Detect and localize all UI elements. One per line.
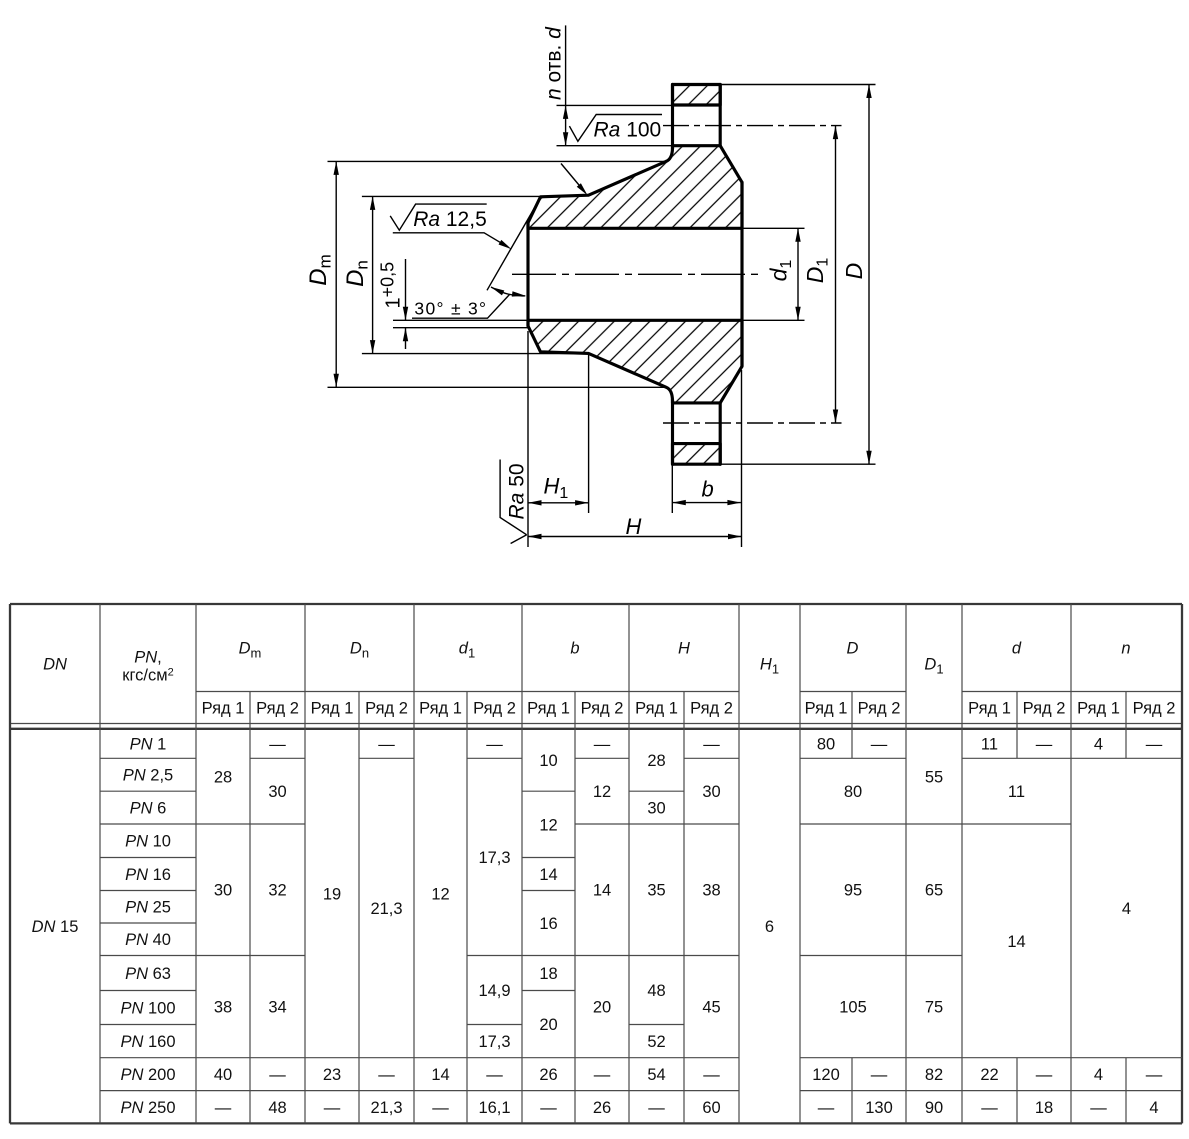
svg-text:130: 130 xyxy=(865,1099,893,1117)
svg-text:кгс/см2: кгс/см2 xyxy=(122,666,173,684)
svg-text:—: — xyxy=(594,736,611,754)
svg-text:D: D xyxy=(841,263,867,280)
svg-text:PN 6: PN 6 xyxy=(130,800,167,818)
svg-text:—: — xyxy=(703,736,720,754)
svg-text:Ряд 2: Ряд 2 xyxy=(1133,699,1176,717)
svg-text:Ряд 1: Ряд 1 xyxy=(311,699,354,717)
svg-text:Dm: Dm xyxy=(239,640,262,661)
svg-text:Ra 50: Ra 50 xyxy=(506,463,529,519)
svg-text:—: — xyxy=(1146,1066,1163,1084)
svg-text:Ряд 1: Ряд 1 xyxy=(527,699,570,717)
svg-text:35: 35 xyxy=(647,882,665,900)
svg-text:120: 120 xyxy=(812,1066,840,1084)
svg-text:12: 12 xyxy=(431,885,449,903)
svg-text:PN 200: PN 200 xyxy=(120,1066,175,1084)
svg-text:16: 16 xyxy=(539,915,557,933)
svg-text:54: 54 xyxy=(647,1066,665,1084)
svg-text:32: 32 xyxy=(268,882,286,900)
svg-text:48: 48 xyxy=(647,982,665,1000)
svg-text:14: 14 xyxy=(431,1066,449,1084)
svg-text:14: 14 xyxy=(539,866,557,884)
svg-text:16,1: 16,1 xyxy=(478,1099,510,1117)
svg-text:28: 28 xyxy=(647,752,665,770)
svg-text:PN 40: PN 40 xyxy=(125,931,171,949)
svg-text:PN 63: PN 63 xyxy=(125,965,171,983)
svg-text:18: 18 xyxy=(1035,1099,1053,1117)
svg-text:—: — xyxy=(486,736,503,754)
svg-text:34: 34 xyxy=(268,999,286,1017)
svg-text:PN 160: PN 160 xyxy=(120,1033,175,1051)
svg-text:19: 19 xyxy=(323,885,341,903)
svg-text:PN 25: PN 25 xyxy=(125,899,171,917)
svg-text:—: — xyxy=(1090,1099,1107,1117)
svg-text:17,3: 17,3 xyxy=(478,1033,510,1051)
svg-text:26: 26 xyxy=(593,1099,611,1117)
svg-text:82: 82 xyxy=(925,1066,943,1084)
svg-text:D: D xyxy=(847,640,859,658)
svg-text:Ряд 2: Ряд 2 xyxy=(256,699,299,717)
svg-text:—: — xyxy=(540,1099,557,1117)
svg-text:10: 10 xyxy=(539,752,557,770)
svg-text:28: 28 xyxy=(214,768,232,786)
svg-text:1+0,5: 1+0,5 xyxy=(378,262,405,309)
svg-text:Ряд 1: Ряд 1 xyxy=(202,699,245,717)
svg-text:Ряд 1: Ряд 1 xyxy=(635,699,678,717)
svg-text:52: 52 xyxy=(647,1033,665,1051)
svg-text:—: — xyxy=(818,1099,835,1117)
svg-text:Ряд 2: Ряд 2 xyxy=(690,699,733,717)
svg-text:Dn: Dn xyxy=(350,640,369,661)
svg-text:b: b xyxy=(702,477,714,502)
svg-text:95: 95 xyxy=(844,882,862,900)
svg-text:—: — xyxy=(1146,736,1163,754)
svg-text:PN 10: PN 10 xyxy=(125,833,171,851)
svg-text:—: — xyxy=(269,736,286,754)
svg-text:20: 20 xyxy=(539,1016,557,1034)
svg-text:18: 18 xyxy=(539,965,557,983)
svg-text:45: 45 xyxy=(702,999,720,1017)
svg-text:30: 30 xyxy=(647,800,665,818)
svg-text:—: — xyxy=(432,1099,449,1117)
svg-text:65: 65 xyxy=(925,882,943,900)
svg-text:—: — xyxy=(215,1099,232,1117)
svg-text:—: — xyxy=(486,1066,503,1084)
svg-text:38: 38 xyxy=(214,999,232,1017)
svg-text:105: 105 xyxy=(839,999,867,1017)
svg-text:DN 15: DN 15 xyxy=(32,918,79,936)
svg-text:21,3: 21,3 xyxy=(370,900,402,918)
svg-text:30° ± 3°: 30° ± 3° xyxy=(414,298,487,318)
svg-text:Ряд 1: Ряд 1 xyxy=(968,699,1011,717)
svg-text:26: 26 xyxy=(539,1066,557,1084)
svg-text:—: — xyxy=(703,1066,720,1084)
svg-text:n: n xyxy=(1121,640,1130,658)
svg-text:d1: d1 xyxy=(459,640,475,661)
svg-text:14: 14 xyxy=(1007,933,1025,951)
svg-text:—: — xyxy=(269,1066,286,1084)
svg-text:H: H xyxy=(626,514,642,539)
svg-text:55: 55 xyxy=(925,768,943,786)
svg-text:17,3: 17,3 xyxy=(478,849,510,867)
svg-text:—: — xyxy=(324,1099,341,1117)
svg-text:14,9: 14,9 xyxy=(478,982,510,1000)
svg-text:—: — xyxy=(871,736,888,754)
svg-text:Dm: Dm xyxy=(305,254,335,286)
svg-text:Ra 12,5: Ra 12,5 xyxy=(413,208,487,231)
svg-text:D1: D1 xyxy=(802,258,832,284)
svg-text:22: 22 xyxy=(980,1066,998,1084)
svg-text:80: 80 xyxy=(844,783,862,801)
svg-text:—: — xyxy=(378,1066,395,1084)
svg-text:Ряд 2: Ряд 2 xyxy=(1023,699,1066,717)
svg-text:Ряд 2: Ряд 2 xyxy=(858,699,901,717)
svg-text:80: 80 xyxy=(817,736,835,754)
svg-text:Ряд 1: Ряд 1 xyxy=(1077,699,1120,717)
svg-text:21,3: 21,3 xyxy=(370,1099,402,1117)
svg-text:PN,: PN, xyxy=(134,649,162,667)
svg-text:4: 4 xyxy=(1094,736,1103,754)
svg-text:—: — xyxy=(378,736,395,754)
svg-text:Ряд 2: Ряд 2 xyxy=(581,699,624,717)
svg-text:PN 100: PN 100 xyxy=(120,999,175,1017)
svg-text:4: 4 xyxy=(1094,1066,1103,1084)
svg-text:12: 12 xyxy=(593,783,611,801)
svg-text:n отв. d: n отв. d xyxy=(543,26,566,100)
svg-text:11: 11 xyxy=(981,736,998,754)
svg-text:d: d xyxy=(1012,640,1022,658)
svg-text:11: 11 xyxy=(1008,783,1025,801)
svg-text:30: 30 xyxy=(268,783,286,801)
svg-text:Ряд 1: Ряд 1 xyxy=(805,699,848,717)
svg-text:30: 30 xyxy=(702,783,720,801)
svg-text:PN 2,5: PN 2,5 xyxy=(123,767,173,785)
svg-text:H: H xyxy=(678,640,690,658)
svg-text:—: — xyxy=(1036,736,1053,754)
svg-text:38: 38 xyxy=(702,882,720,900)
svg-text:—: — xyxy=(594,1066,611,1084)
svg-text:40: 40 xyxy=(214,1066,232,1084)
svg-text:Ряд 2: Ряд 2 xyxy=(473,699,516,717)
svg-text:30: 30 xyxy=(214,882,232,900)
svg-text:d1: d1 xyxy=(766,260,796,282)
svg-text:—: — xyxy=(1036,1066,1053,1084)
svg-text:4: 4 xyxy=(1149,1099,1158,1117)
svg-text:—: — xyxy=(981,1099,998,1117)
svg-text:Dn: Dn xyxy=(342,260,372,287)
svg-text:75: 75 xyxy=(925,999,943,1017)
svg-text:DN: DN xyxy=(43,656,67,674)
svg-text:12: 12 xyxy=(539,816,557,834)
svg-text:6: 6 xyxy=(765,918,774,936)
svg-text:20: 20 xyxy=(593,999,611,1017)
svg-text:H1: H1 xyxy=(760,656,779,677)
svg-text:D1: D1 xyxy=(924,656,943,677)
svg-text:PN 1: PN 1 xyxy=(130,736,167,754)
svg-text:60: 60 xyxy=(702,1099,720,1117)
svg-text:PN 16: PN 16 xyxy=(125,866,171,884)
svg-text:—: — xyxy=(871,1066,888,1084)
svg-text:4: 4 xyxy=(1122,900,1131,918)
svg-text:48: 48 xyxy=(268,1099,286,1117)
svg-text:90: 90 xyxy=(925,1099,943,1117)
svg-text:H1: H1 xyxy=(544,474,569,503)
svg-text:23: 23 xyxy=(323,1066,341,1084)
svg-text:Ряд 2: Ряд 2 xyxy=(365,699,408,717)
svg-text:—: — xyxy=(648,1099,665,1117)
svg-text:b: b xyxy=(570,640,579,658)
svg-text:PN 250: PN 250 xyxy=(120,1099,175,1117)
svg-text:14: 14 xyxy=(593,882,611,900)
svg-text:Ra 100: Ra 100 xyxy=(594,118,662,141)
svg-text:Ряд 1: Ряд 1 xyxy=(419,699,462,717)
